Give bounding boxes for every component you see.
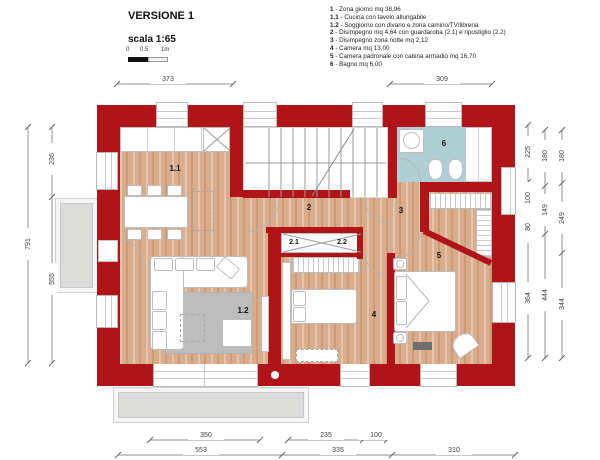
scalebar-tick-05: 0.5 bbox=[140, 47, 148, 53]
legend-item: 3 - Disimpegno zona notte mq 2,12 bbox=[330, 37, 594, 45]
dining-chair bbox=[127, 229, 142, 240]
bidet bbox=[448, 159, 463, 180]
dim-right1-d: 364 bbox=[525, 282, 533, 314]
page-title: VERSIONE 1 bbox=[128, 10, 194, 22]
dining-chair bbox=[127, 185, 142, 196]
dim-left-outer: 791 bbox=[25, 228, 33, 260]
wall-bathroom-bottom bbox=[420, 182, 492, 192]
sofa-cushion bbox=[152, 311, 167, 330]
legend-item: 1 - Zona giorno mq 38,96 bbox=[330, 6, 594, 14]
pillow bbox=[396, 276, 407, 300]
legend-item: 5 - Camera padronale con cabina armadio … bbox=[330, 53, 594, 61]
window-top-stairs-left bbox=[243, 102, 277, 127]
bathroom-cabinet bbox=[465, 127, 492, 182]
dining-chair bbox=[147, 229, 162, 240]
dim-bottom1-a: 350 bbox=[188, 432, 224, 440]
scale-label: scala 1:65 bbox=[128, 34, 176, 45]
dim-bottom2-a: 553 bbox=[183, 447, 219, 455]
chimney-flue-dot bbox=[271, 371, 279, 379]
legend-item: 2 - Disimpegno mq 4,64 con guardaroba (2… bbox=[330, 29, 594, 37]
scalebar-tick-1m: 1m bbox=[161, 47, 169, 53]
window-top-kitchen bbox=[156, 102, 188, 127]
shower-drain bbox=[403, 132, 420, 149]
pouf bbox=[222, 319, 252, 347]
room-label-kitchen: 1.1 bbox=[165, 164, 185, 173]
wall-under-stairs bbox=[243, 190, 350, 198]
toilet bbox=[428, 159, 443, 180]
legend: 1 - Zona giorno mq 38,96 1.1 - Cucina co… bbox=[330, 6, 594, 68]
window-top-stairs-right bbox=[352, 102, 383, 127]
room-label-living: 1.2 bbox=[233, 306, 253, 315]
dim-right2-c: 444 bbox=[542, 279, 550, 311]
sofa-cushion bbox=[154, 258, 173, 271]
dining-chair bbox=[167, 185, 182, 196]
wall-right bbox=[492, 105, 515, 386]
walkin-closet-wardrobe-right bbox=[476, 209, 492, 257]
dim-bottom2-c: 310 bbox=[436, 447, 472, 455]
dim-top-right: 309 bbox=[424, 76, 460, 84]
wall-closet-hall3 bbox=[357, 227, 363, 259]
window-right-bathroom bbox=[501, 167, 516, 215]
room-label-hall-night: 3 bbox=[395, 206, 407, 215]
room-label-wardrobe: 2.1 bbox=[286, 238, 302, 247]
desk-dashed bbox=[296, 349, 338, 362]
dim-bottom2-b: 335 bbox=[320, 447, 356, 455]
scalebar-tick-0: 0 bbox=[126, 47, 129, 53]
dim-right3-a: 180 bbox=[559, 140, 567, 172]
pillow bbox=[396, 301, 407, 325]
window-left-living bbox=[96, 295, 118, 328]
kitchen-sink bbox=[203, 127, 230, 152]
wall-closet-bottom bbox=[281, 253, 363, 257]
staircase bbox=[243, 127, 388, 198]
dining-chair bbox=[147, 185, 162, 196]
pillow bbox=[293, 291, 306, 306]
door-left-balcony bbox=[98, 240, 118, 262]
dim-right3-c: 344 bbox=[559, 288, 567, 320]
dim-left-lower: 555 bbox=[49, 263, 57, 295]
floor-plan-sheet: VERSIONE 1 scala 1:65 0 0.5 1m 1 - Zona … bbox=[0, 0, 600, 460]
nightstand-lamp bbox=[396, 334, 404, 342]
dim-right1-c: 80 bbox=[525, 211, 533, 243]
sofa-cushion bbox=[152, 291, 167, 310]
dim-right3-b: 249 bbox=[559, 202, 567, 234]
kitchen-island-dashed bbox=[192, 191, 214, 231]
wall-hall3-walkin bbox=[420, 192, 429, 232]
bookshelf-unit bbox=[282, 262, 291, 360]
window-left-kitchen bbox=[96, 152, 118, 190]
scalebar-white-segment bbox=[148, 57, 168, 62]
dim-right2-a: 180 bbox=[542, 140, 550, 172]
wall-living-bedroom bbox=[268, 233, 281, 364]
wall-stairs-bathroom bbox=[388, 127, 397, 198]
room-label-hall: 2 bbox=[303, 203, 315, 212]
walkin-closet-wardrobe-top bbox=[429, 193, 492, 209]
room-label-bath: 6 bbox=[438, 139, 450, 148]
room-label-storage: 2.2 bbox=[334, 238, 350, 247]
window-top-bathroom bbox=[425, 102, 462, 127]
window-bottom-master bbox=[420, 362, 457, 387]
sofa-cushion bbox=[152, 331, 167, 350]
dim-right2-b: 149 bbox=[542, 194, 550, 226]
legend-item: 1.1 - Cucina con tavolo allungabile bbox=[330, 14, 594, 22]
tv-fireplace-unit bbox=[261, 296, 269, 352]
window-bottom-living bbox=[153, 362, 258, 387]
dim-left-upper: 236 bbox=[49, 143, 57, 175]
sofa-cushion bbox=[196, 258, 215, 271]
dining-chair bbox=[167, 229, 182, 240]
window-mullion bbox=[204, 363, 205, 386]
bedroom-wardrobe bbox=[292, 257, 360, 273]
dim-bottom1-b: 235 bbox=[308, 432, 344, 440]
wall-kitchen-stairs bbox=[230, 127, 243, 197]
room-label-bedroom: 4 bbox=[368, 310, 380, 319]
scalebar-black-segment bbox=[128, 57, 148, 62]
room-label-master: 5 bbox=[433, 251, 445, 260]
dim-top-left: 373 bbox=[150, 76, 186, 84]
dim-bottom1-c: 100 bbox=[358, 432, 394, 440]
bed-bench bbox=[413, 342, 432, 350]
window-bottom-bedroom bbox=[340, 362, 370, 387]
nightstand-lamp bbox=[396, 260, 404, 268]
coffee-table-dashed bbox=[180, 314, 205, 342]
legend-item: 4 - Camera mq 13,00 bbox=[330, 45, 594, 53]
legend-item: 6 - Bagno mq 6,00 bbox=[330, 61, 594, 69]
dining-table bbox=[124, 196, 188, 228]
window-right-master bbox=[492, 282, 516, 323]
dim-right1-a: 225 bbox=[525, 136, 533, 168]
pillow bbox=[293, 307, 306, 322]
legend-item: 1.2 - Soggiorno con divano e zona camino… bbox=[330, 22, 594, 30]
balcony-left-slab bbox=[60, 203, 93, 288]
dim-right1-b: 100 bbox=[525, 182, 533, 214]
balcony-bottom-slab bbox=[118, 392, 304, 418]
sofa-cushion bbox=[175, 258, 194, 271]
